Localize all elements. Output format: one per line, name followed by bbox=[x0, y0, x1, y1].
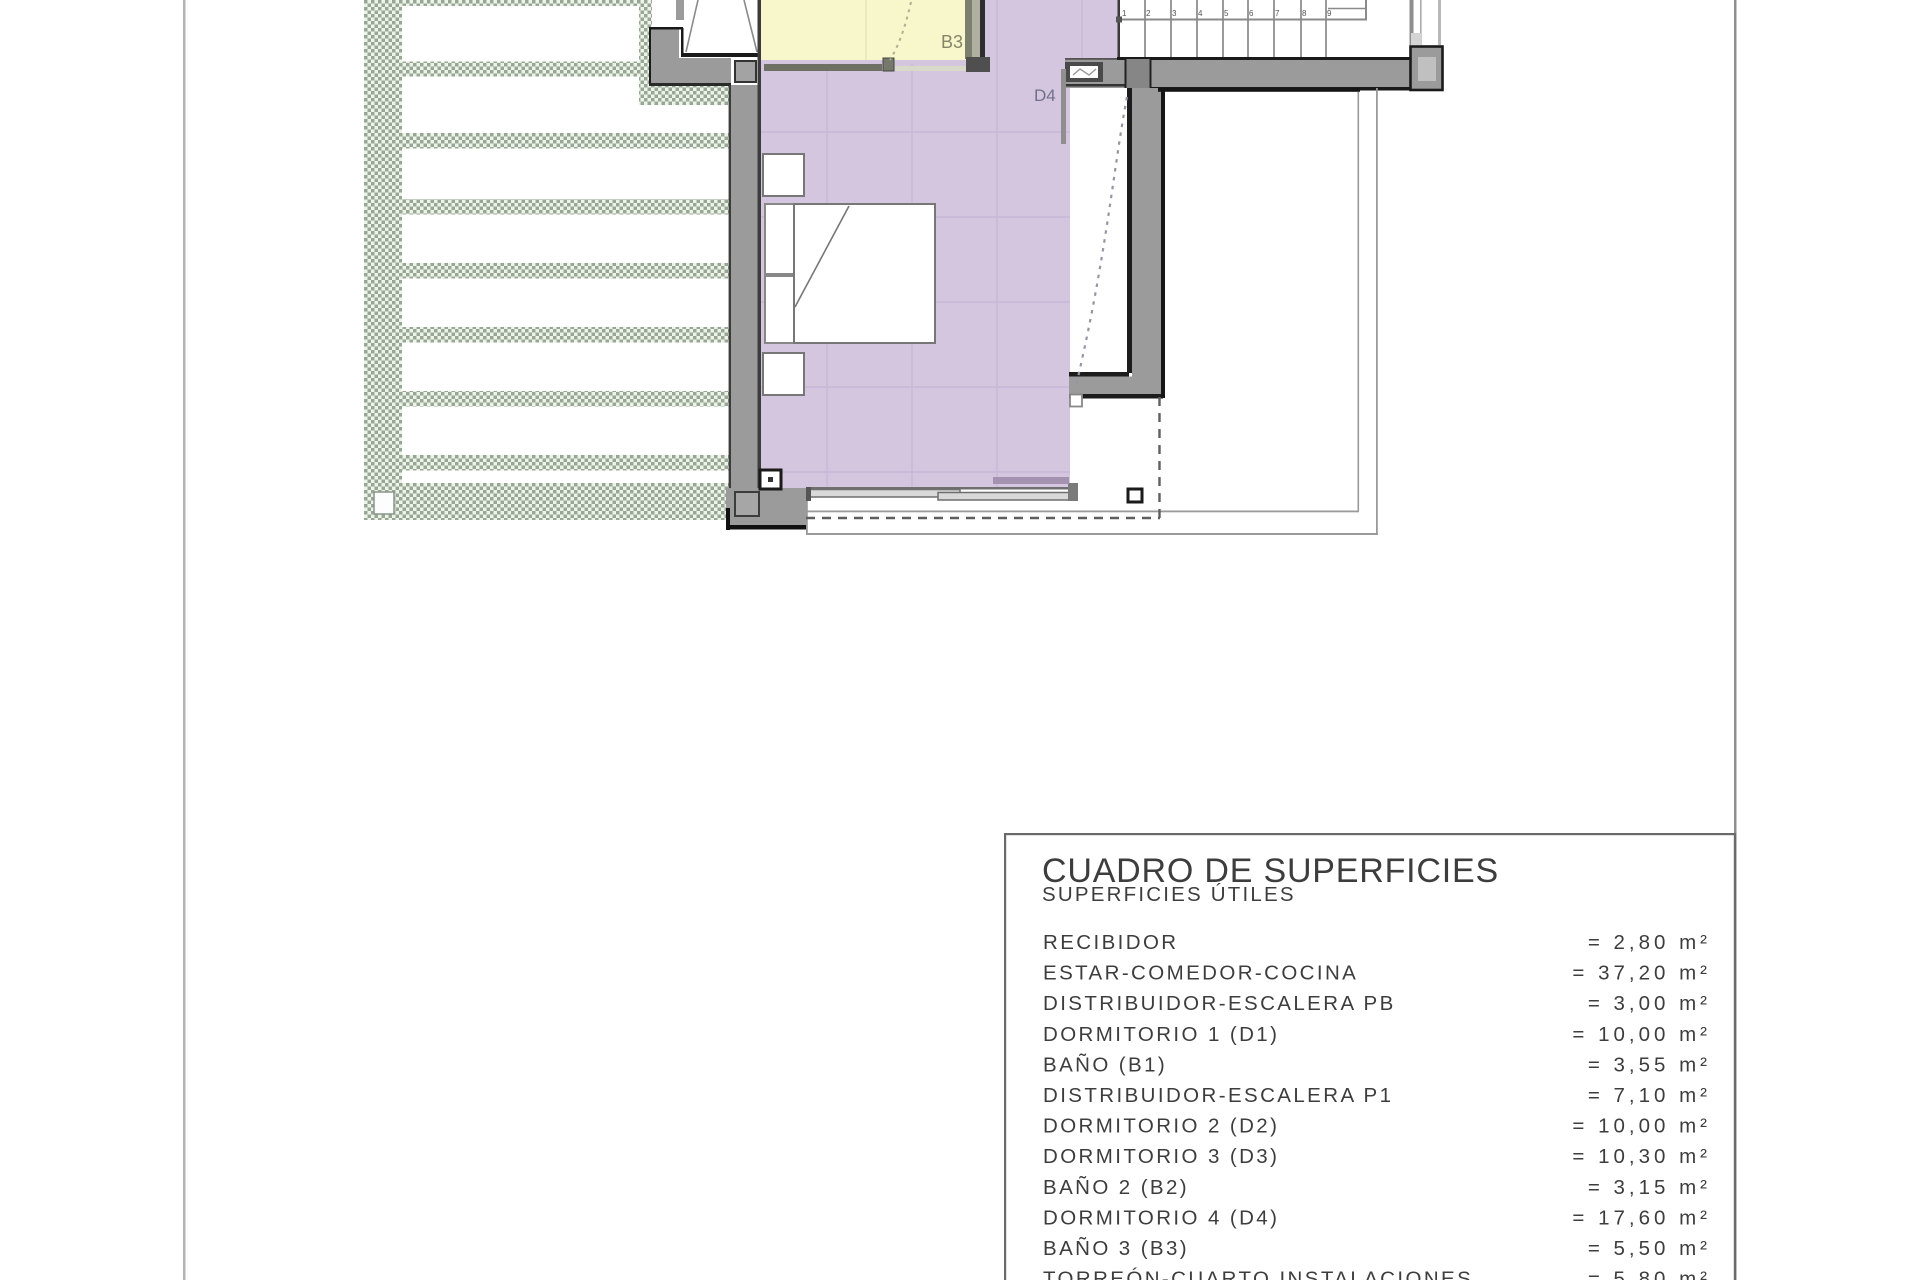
svg-text:1: 1 bbox=[1122, 9, 1127, 18]
svg-text:= 5,50 m²: = 5,50 m² bbox=[1588, 1237, 1711, 1260]
svg-text:= 10,00 m²: = 10,00 m² bbox=[1572, 1115, 1711, 1138]
svg-text:8: 8 bbox=[1302, 9, 1307, 18]
svg-text:DISTRIBUIDOR-ESCALERA PB: DISTRIBUIDOR-ESCALERA PB bbox=[1043, 992, 1396, 1015]
svg-text:SUPERFICIES ÚTILES: SUPERFICIES ÚTILES bbox=[1042, 883, 1296, 906]
svg-text:ESTAR-COMEDOR-COCINA: ESTAR-COMEDOR-COCINA bbox=[1043, 962, 1358, 985]
svg-text:3: 3 bbox=[1172, 9, 1177, 18]
svg-text:D4: D4 bbox=[1034, 86, 1056, 105]
svg-text:= 3,00 m²: = 3,00 m² bbox=[1588, 992, 1711, 1015]
svg-text:= 10,00 m²: = 10,00 m² bbox=[1572, 1023, 1711, 1046]
svg-text:= 10,30 m²: = 10,30 m² bbox=[1572, 1145, 1711, 1168]
svg-text:BAÑO 2 (B2): BAÑO 2 (B2) bbox=[1043, 1176, 1189, 1199]
svg-text:9: 9 bbox=[1327, 9, 1332, 18]
svg-text:DISTRIBUIDOR-ESCALERA P1: DISTRIBUIDOR-ESCALERA P1 bbox=[1043, 1084, 1393, 1107]
svg-text:BAÑO (B1): BAÑO (B1) bbox=[1043, 1053, 1167, 1076]
svg-text:7: 7 bbox=[1275, 9, 1280, 18]
svg-text:6: 6 bbox=[1249, 9, 1254, 18]
svg-text:= 2,80 m²: = 2,80 m² bbox=[1588, 931, 1711, 954]
svg-text:2: 2 bbox=[1146, 9, 1151, 18]
svg-text:= 7,10 m²: = 7,10 m² bbox=[1588, 1084, 1711, 1107]
svg-text:4: 4 bbox=[1198, 9, 1203, 18]
svg-text:= 37,20 m²: = 37,20 m² bbox=[1572, 962, 1711, 985]
svg-text:DORMITORIO 3 (D3): DORMITORIO 3 (D3) bbox=[1043, 1145, 1279, 1168]
svg-text:5: 5 bbox=[1224, 9, 1229, 18]
svg-text:= 3,55 m²: = 3,55 m² bbox=[1588, 1053, 1711, 1076]
svg-text:TORREÓN-CUARTO INSTALACIONES: TORREÓN-CUARTO INSTALACIONES bbox=[1043, 1268, 1473, 1280]
svg-text:RECIBIDOR: RECIBIDOR bbox=[1043, 931, 1179, 954]
svg-text:= 17,60 m²: = 17,60 m² bbox=[1572, 1206, 1711, 1229]
svg-text:= 3,15 m²: = 3,15 m² bbox=[1588, 1176, 1711, 1199]
svg-text:DORMITORIO 2 (D2): DORMITORIO 2 (D2) bbox=[1043, 1115, 1279, 1138]
svg-text:BAÑO 3 (B3): BAÑO 3 (B3) bbox=[1043, 1237, 1189, 1260]
svg-text:DORMITORIO 4 (D4): DORMITORIO 4 (D4) bbox=[1043, 1206, 1279, 1229]
svg-text:= 5,80 m²: = 5,80 m² bbox=[1588, 1268, 1711, 1280]
svg-text:DORMITORIO 1 (D1): DORMITORIO 1 (D1) bbox=[1043, 1023, 1279, 1046]
svg-text:B3: B3 bbox=[941, 32, 963, 52]
